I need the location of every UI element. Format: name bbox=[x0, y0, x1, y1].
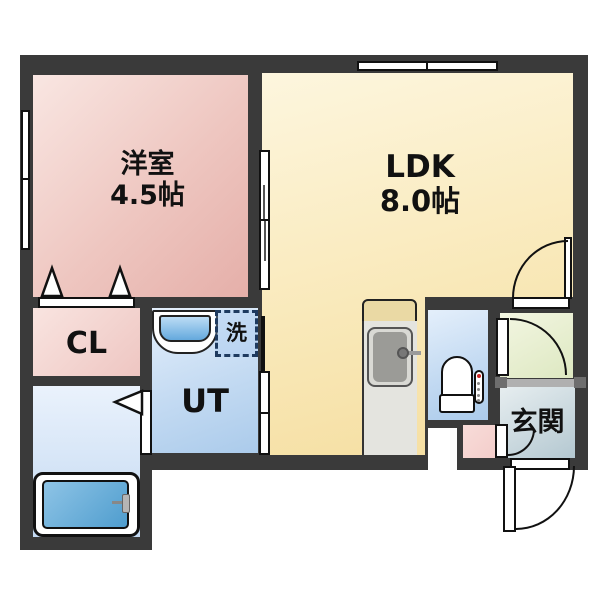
entrance-name: 玄関 bbox=[511, 407, 565, 438]
toilet-door bbox=[496, 318, 509, 376]
utility-name: UT bbox=[181, 383, 229, 420]
entrance-door-leaf bbox=[503, 466, 516, 532]
sliding-door-panel-line-1 bbox=[263, 185, 265, 219]
bathtub-icon bbox=[42, 480, 129, 529]
step-cap-left bbox=[495, 377, 507, 388]
western-room-name: 洋室 bbox=[121, 149, 175, 180]
kitchen-faucet-icon bbox=[397, 347, 409, 359]
kitchen-counter-top bbox=[362, 299, 417, 323]
window-west bbox=[21, 110, 30, 250]
sliding-door-ldk-utility-divider bbox=[259, 412, 270, 414]
floorplan: 洋室 4.5帖 LDK 8.0帖 CL UT 洗 玄関 bbox=[0, 0, 600, 600]
window-north-divider bbox=[426, 61, 428, 71]
pipe-niche bbox=[428, 428, 457, 470]
washlet-dot-3 bbox=[477, 394, 480, 397]
sliding-door-panel-line-2 bbox=[264, 221, 266, 261]
ldk-door-threshold bbox=[512, 297, 570, 309]
toilet-bowl-icon bbox=[441, 356, 473, 397]
washlet-dot-1 bbox=[477, 382, 480, 385]
entrance-alcove bbox=[463, 425, 497, 458]
label-ldk: LDK 8.0帖 bbox=[330, 143, 510, 225]
label-entrance: 玄関 bbox=[500, 406, 575, 440]
entrance-door-swing-arc bbox=[516, 466, 575, 530]
label-closet: CL bbox=[33, 324, 140, 364]
entrance-step-edge bbox=[506, 379, 576, 387]
label-western-room: 洋室 4.5帖 bbox=[60, 140, 235, 220]
sliding-door-pocket-line bbox=[261, 316, 265, 372]
label-laundry: 洗 bbox=[215, 312, 258, 355]
closet-name: CL bbox=[66, 327, 107, 362]
washlet-dot-2 bbox=[477, 388, 480, 391]
label-utility: UT bbox=[152, 380, 258, 422]
ldk-size: 8.0帖 bbox=[380, 185, 460, 218]
washlet-power-dot bbox=[477, 374, 481, 378]
window-west-divider bbox=[21, 178, 30, 180]
washbasin-icon bbox=[159, 315, 211, 342]
western-room-size: 4.5帖 bbox=[110, 180, 185, 211]
step-cap-right bbox=[574, 377, 586, 388]
bathtub-faucet-icon bbox=[122, 494, 130, 513]
laundry-name: 洗 bbox=[226, 321, 247, 345]
ldk-name: LDK bbox=[385, 150, 455, 186]
toilet-base bbox=[439, 394, 475, 413]
closet-door-track bbox=[38, 297, 135, 308]
washlet-dot-4 bbox=[477, 399, 480, 402]
bathroom-door bbox=[140, 390, 152, 455]
